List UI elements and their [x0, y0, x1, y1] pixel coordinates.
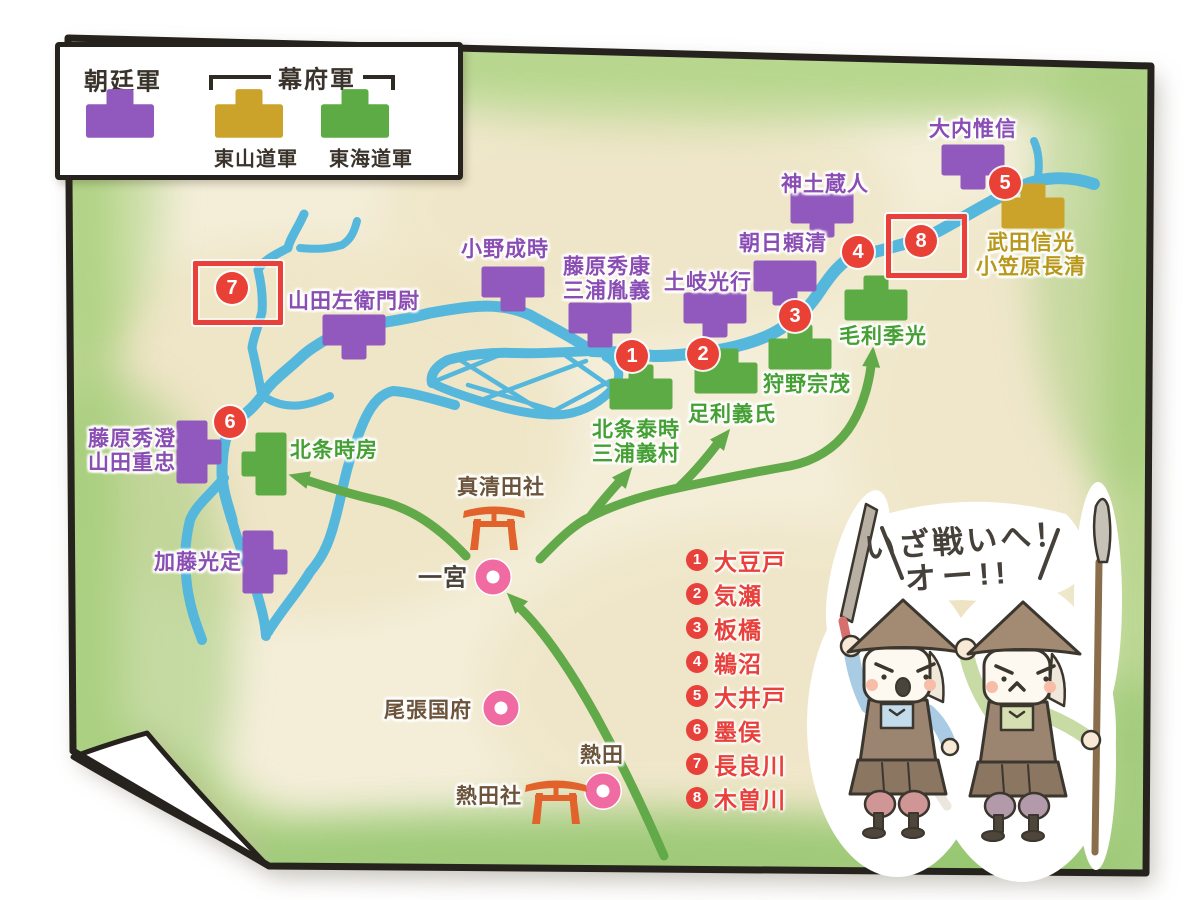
bracket-tick-right	[391, 75, 395, 90]
legend-tokaido-label: 東海道軍	[329, 143, 413, 172]
legend-tosando-label: 東山道軍	[214, 143, 298, 172]
town-donut-icon-atsuta	[584, 772, 622, 810]
legend-shogunate-label: 幕府軍	[278, 60, 356, 95]
legend-box: 朝廷軍 幕府軍 東山道軍 東海道軍	[55, 42, 463, 180]
samurai-illustration	[807, 482, 1122, 882]
bracket-tick-left	[209, 75, 213, 90]
town-donut-icon-owari-kokufu	[482, 689, 520, 727]
historical-battle-map: 朝廷軍 幕府軍 東山道軍 東海道軍 いざ戦いへ！ オー!! 大内惟信神土蔵人朝日…	[0, 0, 1200, 900]
town-donut-icon-ichinomiya	[474, 558, 512, 596]
bracket-left	[209, 75, 271, 79]
legend-imperial-label: 朝廷軍	[84, 62, 162, 97]
